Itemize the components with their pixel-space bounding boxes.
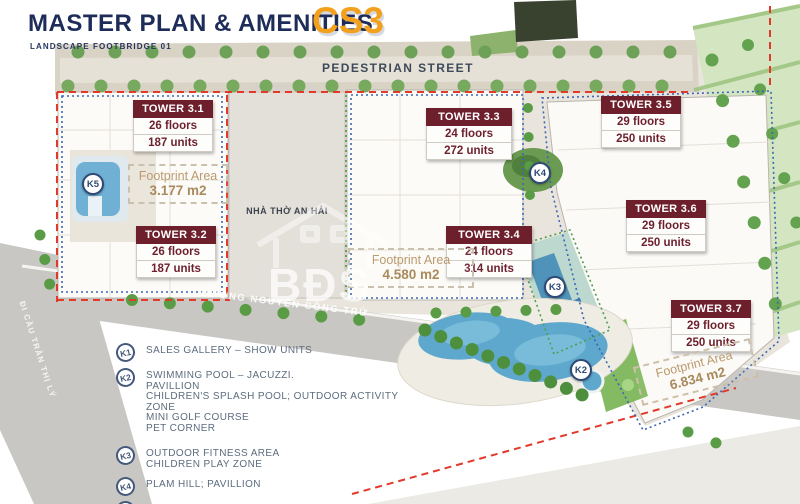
map-marker-k3: K3 xyxy=(544,276,566,298)
tower-name: TOWER 3.7 xyxy=(671,300,751,318)
legend-line: CHILDREN'S SPLASH POOL; OUTDOOR ACTIVITY… xyxy=(146,392,416,413)
legend-key-badge: K3 xyxy=(114,444,137,467)
legend-item-k3: K3 OUTDOOR FITNESS AREA CHILDREN PLAY ZO… xyxy=(116,446,416,470)
tower-floors: 29 floors xyxy=(671,318,751,335)
tower-3-2-label: TOWER 3.2 26 floors 187 units xyxy=(136,226,216,278)
legend-key-badge: K2 xyxy=(114,366,137,389)
map-marker-k5: K5 xyxy=(82,173,104,195)
map-marker-k4: K4 xyxy=(529,162,551,184)
legend-item-k2: K2 SWIMMING POOL – JACUZZI. PAVILLION CH… xyxy=(116,368,416,434)
tower-floors: 26 floors xyxy=(136,244,216,261)
legend-line: SWIMMING POOL – JACUZZI. xyxy=(146,371,416,382)
tower-3-3-label: TOWER 3.3 24 floors 272 units xyxy=(426,108,512,160)
tower-name: TOWER 3.1 xyxy=(133,100,213,118)
tower-3-1-label: TOWER 3.1 26 floors 187 units xyxy=(133,100,213,152)
legend-key-badge: K1 xyxy=(114,341,137,364)
legend-item-text: SWIMMING POOL – JACUZZI. PAVILLION CHILD… xyxy=(146,368,416,434)
legend-item-text: OUTDOOR FITNESS AREA CHILDREN PLAY ZONE xyxy=(146,446,280,470)
project-code: CS3 xyxy=(312,0,384,42)
legend-line: CHILDREN PLAY ZONE xyxy=(146,460,280,471)
legend-line: OUTDOOR FITNESS AREA xyxy=(146,449,280,460)
tower-3-5-label: TOWER 3.5 29 floors 250 units xyxy=(601,96,681,148)
tower-units: 187 units xyxy=(133,135,213,152)
legend-item-k1: K1 SALES GALLERY – SHOW UNITS xyxy=(116,343,416,362)
tower-floors: 29 floors xyxy=(626,218,706,235)
footprint-label: Footprint Area xyxy=(132,169,224,183)
tower-name: TOWER 3.6 xyxy=(626,200,706,218)
church-parcel-label: NHÀ THỜ AN HẢI xyxy=(234,206,340,216)
master-plan-page: MASTER PLAN & AMENITIES CS3 LANDSCAPE FO… xyxy=(0,0,800,504)
pedestrian-street-label: PEDESTRIAN STREET xyxy=(322,61,474,75)
tower-units: 187 units xyxy=(136,261,216,278)
footprint-area-tower-3-1: Footprint Area 3.177 m2 xyxy=(128,164,228,204)
legend-line: SALES GALLERY – SHOW UNITS xyxy=(146,346,312,357)
watermark-text: BĐS xyxy=(268,258,371,312)
amenities-legend: K1 SALES GALLERY – SHOW UNITS K2 SWIMMIN… xyxy=(116,343,416,504)
tower-name: TOWER 3.2 xyxy=(136,226,216,244)
tower-name: TOWER 3.4 xyxy=(446,226,532,244)
legend-item-text: PLAM HILL; PAVILLION xyxy=(146,477,261,491)
legend-key-badge: K4 xyxy=(114,475,137,498)
legend-line: PLAM HILL; PAVILLION xyxy=(146,480,261,491)
footprint-value: 3.177 m2 xyxy=(132,183,224,199)
tower-units: 250 units xyxy=(626,235,706,252)
legend-item-k4: K4 PLAM HILL; PAVILLION xyxy=(116,477,416,496)
tower-name: TOWER 3.5 xyxy=(601,96,681,114)
tower-3-6-label: TOWER 3.6 29 floors 250 units xyxy=(626,200,706,252)
legend-item-text: SALES GALLERY – SHOW UNITS xyxy=(146,343,312,357)
tower-floors: 24 floors xyxy=(426,126,512,143)
legend-line: PET CORNER xyxy=(146,424,416,435)
tower-units: 250 units xyxy=(601,131,681,148)
tower-floors: 29 floors xyxy=(601,114,681,131)
page-subtitle: LANDSCAPE FOOTBRIDGE 01 xyxy=(30,42,172,51)
map-marker-k2: K2 xyxy=(570,359,592,381)
tower-units: 272 units xyxy=(426,143,512,160)
legend-line: MINI GOLF COURSE xyxy=(146,413,416,424)
tower-name: TOWER 3.3 xyxy=(426,108,512,126)
legend-key-badge: K5 xyxy=(114,499,137,504)
tower-floors: 26 floors xyxy=(133,118,213,135)
